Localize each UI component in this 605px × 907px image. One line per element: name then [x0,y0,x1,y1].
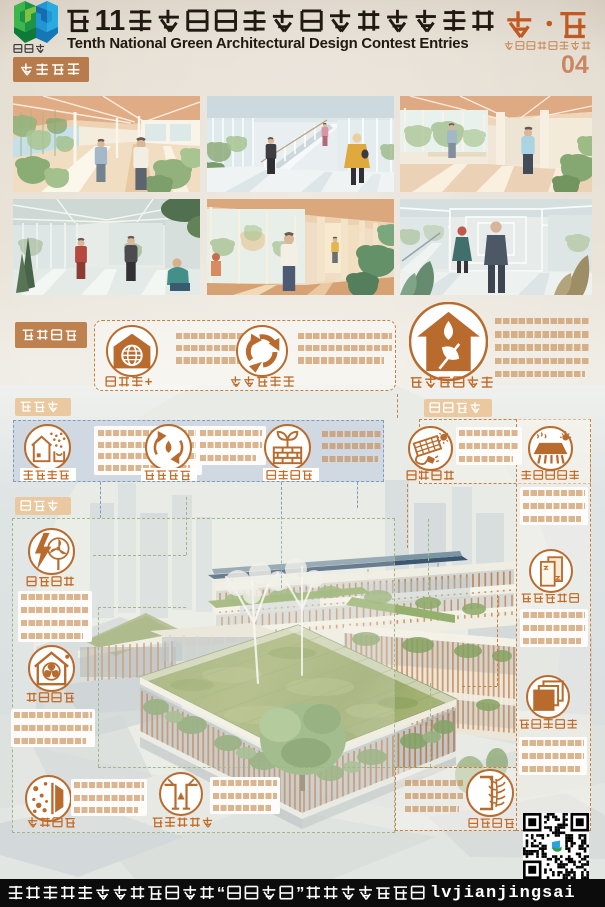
svg-text:”: ” [296,885,304,903]
svg-text:“: “ [217,885,225,903]
svg-text:11: 11 [95,5,126,37]
svg-text:+: + [145,374,153,389]
